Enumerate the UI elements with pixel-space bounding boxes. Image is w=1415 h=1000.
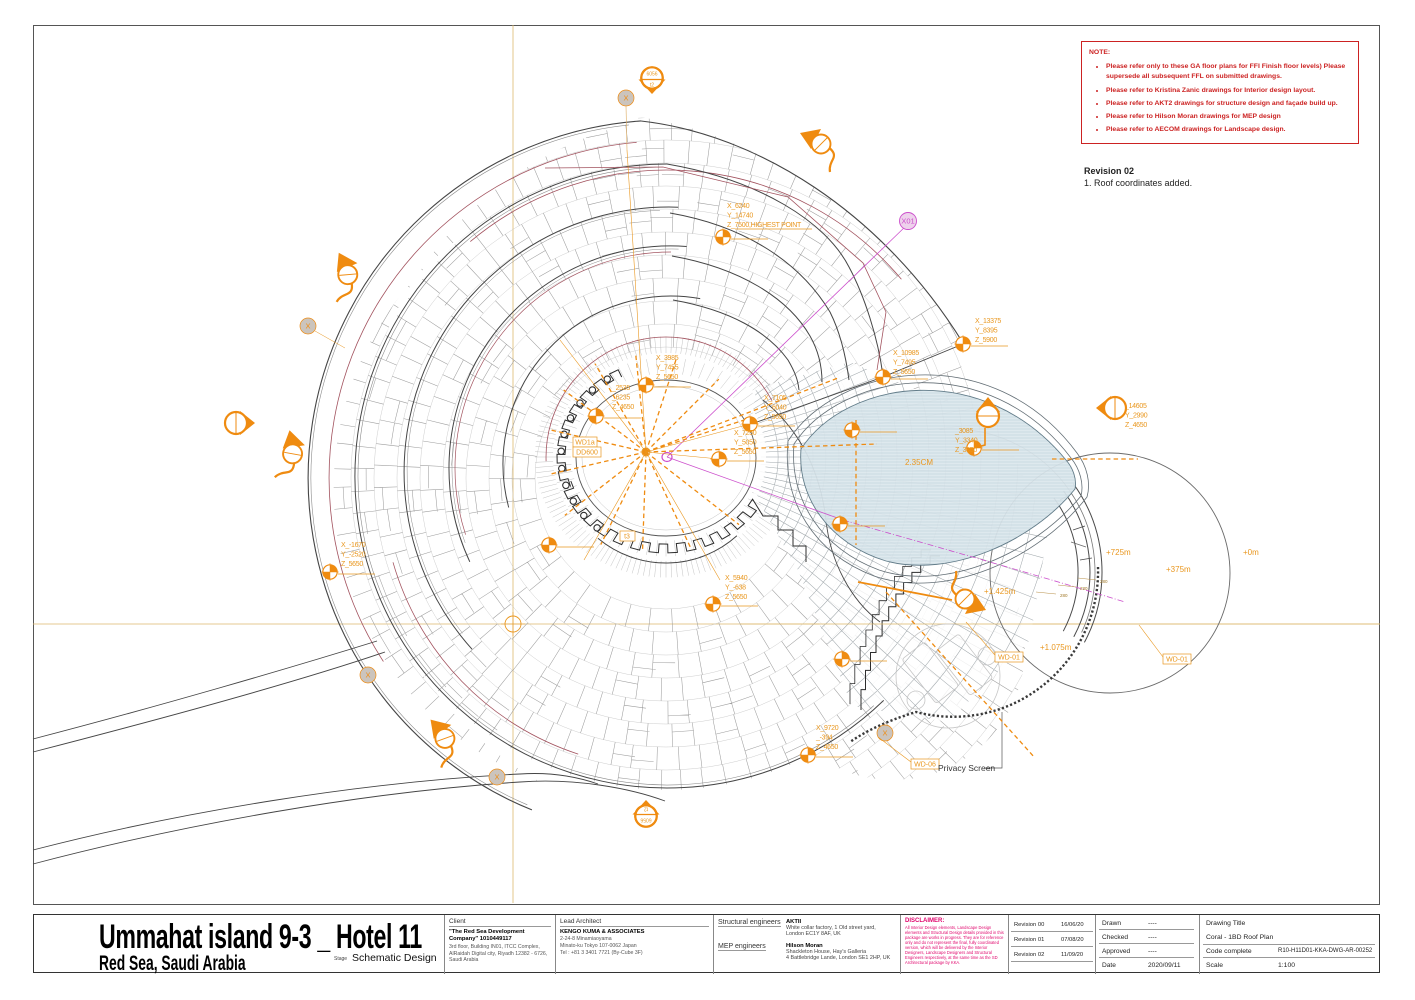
svg-text:WD-06: WD-06 (914, 762, 936, 769)
svg-text:WD-01: WD-01 (1166, 657, 1188, 664)
svg-text:X_5940Y_-638Z_5650: X_5940Y_-638Z_5650 (725, 575, 748, 601)
svg-text:Privacy Screen: Privacy Screen (938, 763, 995, 773)
svg-text:+725m: +725m (1106, 548, 1131, 557)
svg-text:WD-01: WD-01 (998, 655, 1020, 662)
svg-text:WD1a: WD1a (575, 440, 595, 447)
svg-text:+1.425m: +1.425m (984, 587, 1016, 596)
svg-text:X_10985Y_7495Z_5650: X_10985Y_7495Z_5650 (893, 350, 919, 376)
svg-text:280: 280 (1100, 579, 1108, 584)
svg-text:X_9720_-394Z_4650: X_9720_-394Z_4650 (815, 725, 839, 751)
svg-text:+0m: +0m (1243, 548, 1259, 557)
svg-text:X01: X01 (901, 217, 914, 226)
svg-text:+1.075m: +1.075m (1040, 643, 1072, 652)
svg-text:X_13375Y_8395Z_5900: X_13375Y_8395Z_5900 (975, 318, 1001, 344)
svg-text:280: 280 (1060, 593, 1068, 598)
svg-text:t3: t3 (624, 534, 630, 541)
svg-text:X_-1670Y_-2520Z_5650: X_-1670Y_-2520Z_5650 (341, 542, 366, 568)
svg-text:X_6240Y_14740Z_7500,HIGHEST PO: X_6240Y_14740Z_7500,HIGHEST POINT (727, 203, 802, 229)
svg-text:280: 280 (1080, 586, 1088, 591)
svg-text:X_3985Y_7455Z_5650: X_3985Y_7455Z_5650 (656, 355, 679, 381)
svg-text:_14605Y_2990Z_4650: _14605Y_2990Z_4650 (1124, 403, 1148, 429)
svg-text:X_7250Y_5050Z_5650: X_7250Y_5050Z_5650 (734, 430, 757, 456)
svg-text:DD600: DD600 (576, 450, 598, 457)
svg-text:+375m: +375m (1166, 565, 1191, 574)
svg-text:2.35CM: 2.35CM (905, 458, 933, 467)
svg-text:X_7105Y_6040Z_5650: X_7105Y_6040Z_5650 (764, 395, 787, 421)
